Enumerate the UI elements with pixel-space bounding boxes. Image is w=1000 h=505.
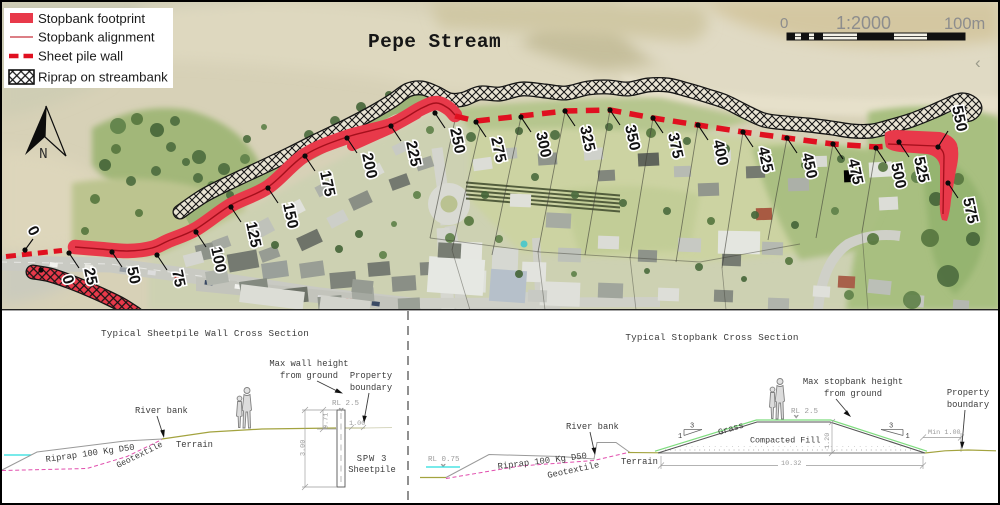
svg-text:1.20: 1.20 <box>824 433 832 449</box>
svg-text:1: 1 <box>906 433 910 441</box>
svg-text:3: 3 <box>889 423 893 431</box>
svg-text:100m: 100m <box>944 15 985 33</box>
svg-text:1.00: 1.00 <box>349 420 365 428</box>
svg-text:SPW 3: SPW 3 <box>357 454 387 464</box>
svg-text:Sheetpile: Sheetpile <box>348 465 396 475</box>
svg-text:Riprap on streambank: Riprap on streambank <box>38 70 168 85</box>
svg-text:from ground: from ground <box>824 389 882 399</box>
svg-text:Max wall height: Max wall height <box>269 359 348 369</box>
svg-text:RL 2.5: RL 2.5 <box>791 408 819 416</box>
svg-text:Max stopbank height: Max stopbank height <box>803 377 903 387</box>
svg-text:1:2000: 1:2000 <box>836 13 891 33</box>
svg-text:Stopbank alignment: Stopbank alignment <box>38 30 155 45</box>
svg-text:Pepe Stream: Pepe Stream <box>368 31 501 53</box>
svg-text:Stopbank footprint: Stopbank footprint <box>38 11 145 26</box>
svg-text:RL 2.5: RL 2.5 <box>332 400 360 408</box>
svg-text:Sheet pile wall: Sheet pile wall <box>38 49 123 64</box>
svg-text:boundary: boundary <box>350 383 392 393</box>
svg-text:Min 1.00: Min 1.00 <box>928 429 961 437</box>
svg-text:from ground: from ground <box>280 371 338 381</box>
svg-text:1: 1 <box>678 433 682 441</box>
svg-text:0: 0 <box>780 15 788 32</box>
svg-text:‹: ‹ <box>975 53 981 72</box>
svg-text:River bank: River bank <box>566 422 619 432</box>
svg-text:RL 0.75: RL 0.75 <box>428 456 460 464</box>
svg-text:Typical Sheetpile Wall Cross S: Typical Sheetpile Wall Cross Section <box>101 328 309 339</box>
svg-text:0.71: 0.71 <box>323 413 331 429</box>
svg-text:3.00: 3.00 <box>300 440 308 456</box>
svg-text:50: 50 <box>123 265 143 285</box>
svg-text:Terrain: Terrain <box>621 457 658 467</box>
svg-text:N: N <box>39 147 48 163</box>
svg-text:Typical Stopbank Cross Section: Typical Stopbank Cross Section <box>625 332 798 343</box>
svg-text:boundary: boundary <box>947 400 989 410</box>
svg-text:Compacted Fill: Compacted Fill <box>750 436 820 446</box>
svg-text:River bank: River bank <box>135 406 188 416</box>
svg-text:3: 3 <box>690 423 694 431</box>
svg-text:10.32: 10.32 <box>781 460 801 468</box>
svg-text:Property: Property <box>947 388 989 398</box>
svg-text:Property: Property <box>350 371 392 381</box>
svg-text:Terrain: Terrain <box>176 440 213 450</box>
